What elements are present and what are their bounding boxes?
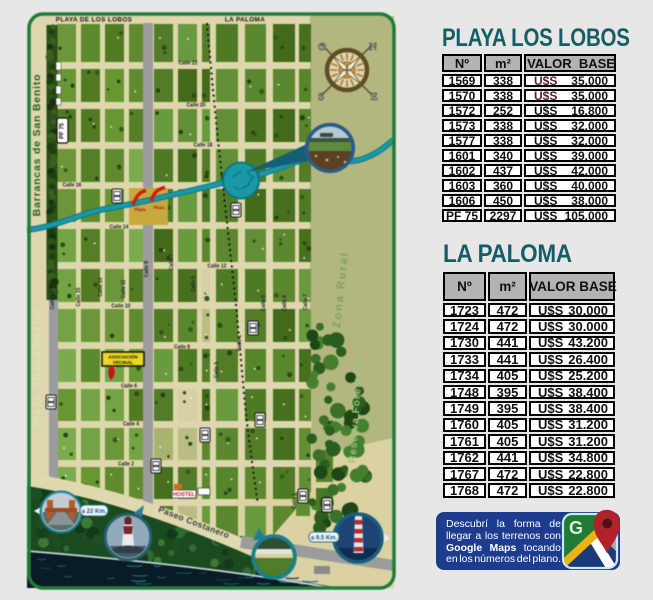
svg-text:a 9.5 Km.: a 9.5 Km. <box>311 536 338 542</box>
svg-text:Calle 22: Calle 22 <box>179 61 198 67</box>
svg-text:Calle 18: Calle 18 <box>194 143 213 149</box>
svg-text:O: O <box>318 41 327 53</box>
svg-text:Calle 10: Calle 10 <box>112 304 131 310</box>
svg-text:S: S <box>318 91 324 103</box>
svg-text:a 22 Km.: a 22 Km. <box>82 509 107 515</box>
svg-text:Plaza: Plaza <box>135 207 146 212</box>
svg-text:Calle 5: Calle 5 <box>261 295 267 311</box>
svg-text:Playa Chapadmalal: Playa Chapadmalal <box>32 309 43 427</box>
svg-text:Calle 9: Calle 9 <box>144 261 150 277</box>
svg-text:Calle 13: Calle 13 <box>98 277 104 296</box>
svg-text:E: E <box>370 91 377 103</box>
svg-text:G: G <box>569 518 583 538</box>
svg-text:Calle 6: Calle 6 <box>282 295 288 311</box>
svg-text:LA PALOMA: LA PALOMA <box>225 17 265 24</box>
svg-text:Calle 3: Calle 3 <box>214 362 220 378</box>
svg-text:Calle 5: Calle 5 <box>191 276 197 292</box>
svg-text:Calle 8: Calle 8 <box>174 345 190 351</box>
svg-text:Calle 1: Calle 1 <box>237 335 243 351</box>
svg-text:Calle 7: Calle 7 <box>169 254 175 270</box>
svg-text:Calle 12: Calle 12 <box>208 264 227 270</box>
svg-text:Barrancas de San Benito: Barrancas de San Benito <box>31 74 43 217</box>
svg-text:Calle 1: Calle 1 <box>292 493 298 509</box>
svg-text:HOSTEL: HOSTEL <box>173 492 196 498</box>
svg-text:Calle 2: Calle 2 <box>118 462 134 468</box>
svg-text:Calle 4: Calle 4 <box>123 422 139 428</box>
svg-text:Calle 11: Calle 11 <box>121 279 127 298</box>
svg-text:Plaza: Plaza <box>154 205 165 210</box>
svg-text:ASOCIACIÓN: ASOCIACIÓN <box>108 353 138 360</box>
svg-text:PF 75: PF 75 <box>60 122 66 139</box>
svg-text:Calle 6: Calle 6 <box>121 384 137 390</box>
svg-text:Calle 17: Calle 17 <box>50 290 56 309</box>
svg-text:Calle 20: Calle 20 <box>187 103 206 109</box>
svg-text:N: N <box>369 41 377 53</box>
svg-text:PLAYA DE LOS LOBOS: PLAYA DE LOS LOBOS <box>56 17 132 24</box>
svg-text:Calle 16: Calle 16 <box>63 183 82 189</box>
svg-text:Calle 15: Calle 15 <box>76 287 82 306</box>
svg-text:Calle 14: Calle 14 <box>110 225 129 231</box>
svg-text:VECINAL: VECINAL <box>113 360 133 365</box>
svg-text:Calle 7: Calle 7 <box>303 294 309 310</box>
